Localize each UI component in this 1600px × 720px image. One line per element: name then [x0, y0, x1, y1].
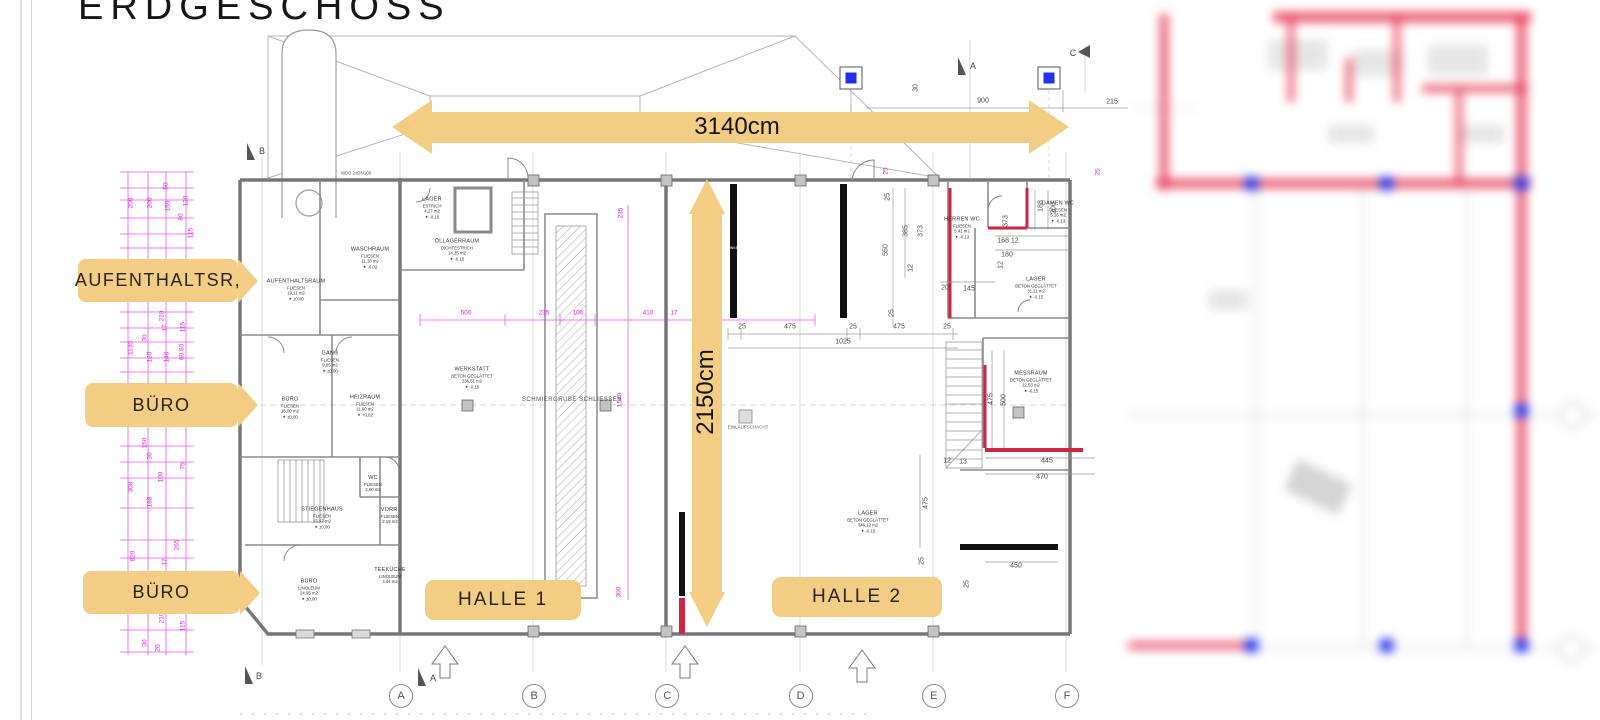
room-name: ÖLLAGERRAUM [435, 239, 479, 246]
room-area: 2,18 m2 [381, 519, 399, 524]
blurred-text-smudge [1328, 125, 1374, 143]
schmiergrube-label: SCHMIERGRUBE SCHLIESSEN [522, 397, 622, 403]
room-level: -0,16 [422, 214, 442, 219]
page-title: ERDGESCHOSS [78, 0, 451, 29]
dim-label: 60,60 [179, 344, 186, 360]
dim-label: 550 [883, 244, 890, 256]
room-name: VORR. [381, 507, 399, 514]
roof-outline [268, 36, 940, 178]
blurred-node-marker [1380, 177, 1393, 190]
dim-label: 450 [1010, 563, 1022, 570]
dim-label: 12 [943, 458, 951, 465]
room-name: HERREN WC [944, 217, 980, 224]
room-label: DAMEN WC FLIESEN 5,16 m2 -0,13 [1042, 201, 1074, 224]
dim-label: 265 [174, 540, 181, 551]
dim-label: 25 [1095, 168, 1102, 175]
section-marker-b-bottom: B [256, 671, 262, 681]
blurred-node-marker [1515, 177, 1528, 190]
dim-label: 150 [142, 438, 149, 449]
room-area: 3,04 m2 [374, 579, 406, 584]
dim-label: 146 [164, 352, 171, 363]
room-name: LAGER [847, 511, 888, 518]
room-name: WERKSTATT [451, 367, 492, 374]
room-area: 4,27 m2 [422, 209, 442, 214]
blurred-grid-bubble [1558, 636, 1584, 662]
door-arcs [268, 158, 1030, 561]
blurred-red-wall [1273, 12, 1531, 22]
width-arrow-left-head [392, 100, 432, 154]
dim-label: 25 [943, 324, 951, 331]
dim-label: 210 [159, 613, 166, 624]
grid-bubble-f: F [1055, 684, 1079, 708]
dim-label: 12 [908, 264, 915, 272]
room-level: -0,15 [847, 528, 888, 533]
halle-2-label: HALLE 2 [772, 577, 942, 617]
blurred-text-smudge [1458, 125, 1504, 143]
room-label: HEIZRAUM FLIESEN 11,60 m2 +0,02 [350, 395, 380, 418]
blurred-node-marker [1515, 404, 1528, 417]
blurred-node-marker [1245, 639, 1258, 652]
section-marker-c: C [1070, 48, 1077, 58]
dim-label: 475 [893, 324, 905, 331]
room-label: LAGER BETON GEGLÄTTET 346,12 m2 -0,15 [847, 511, 888, 534]
blurred-node-marker [1245, 177, 1258, 190]
blurred-plan-region [1128, 0, 1600, 720]
dim-label: 115 [180, 322, 187, 332]
grid-bubble-a: A [389, 684, 413, 708]
width-arrow-right-head [1029, 100, 1069, 154]
tank-outline [282, 30, 336, 218]
blurred-red-wall [1394, 14, 1400, 102]
dim-label: 25 [738, 324, 746, 331]
dim-label: 25 [889, 309, 896, 317]
flag-label: AUFENTHALTSR, [75, 270, 241, 291]
dim-label: 100 [573, 310, 584, 317]
dim-label: 100 [158, 472, 165, 483]
dim-label: 1130 [128, 341, 135, 355]
dim-label: 475 [988, 393, 995, 405]
halle-1-label: HALLE 1 [425, 580, 581, 620]
dim-label: 308 [128, 482, 135, 493]
room-name: LAGER [422, 197, 442, 204]
section-marker-a-bottom: A [430, 673, 436, 683]
dim-label: 30 [142, 334, 149, 341]
dim-label: 500 [1001, 394, 1008, 406]
dim-label: 75 [180, 462, 187, 469]
height-arrow-top-head [689, 179, 725, 214]
room-name: AUFENTHALTSRAUM [267, 279, 326, 286]
grid-bubble-d: D [789, 684, 813, 708]
blurred-node-marker [1380, 639, 1393, 652]
dim-label: 150 [165, 201, 172, 212]
blurred-line [1466, 190, 1468, 648]
dim-label: 20 [155, 644, 162, 651]
dim-label: 17 [162, 558, 169, 565]
flag-aufenthaltsraum: AUFENTHALTSR, [78, 259, 238, 302]
room-name: TEEKÜCHE [374, 567, 406, 574]
grid-bubble-e: E [922, 684, 946, 708]
blurred-red-wall [1456, 92, 1462, 184]
dim-label: 30 [142, 639, 149, 646]
blurred-text-smudge [1428, 45, 1488, 75]
grid-axis-row: A B C D E F [389, 684, 1079, 708]
room-label: WASCHRAUM FLIESEN 11,18 m2 -0,02 [351, 247, 389, 270]
blurred-line [1362, 190, 1364, 648]
dim-label: 17 [162, 324, 169, 331]
room-area: 2,60 m2 [364, 487, 382, 492]
dim-label: 200 [1051, 202, 1058, 214]
room-area: 24,95 m2 [298, 591, 320, 596]
room-level: -0,15 [1015, 294, 1056, 299]
north-arrows [432, 646, 875, 682]
room-label: HERREN WC FLIESEN 5,41 m2 -0,13 [944, 217, 980, 240]
dim-label: 235 [539, 310, 550, 317]
dim-label: 1540 [617, 393, 624, 407]
blurred-text-smudge [1268, 40, 1328, 70]
dim-label: 12 [998, 261, 1005, 269]
dim-label: 200 [147, 198, 154, 209]
dim-label: 13 [959, 459, 967, 466]
room-label: LAGER ESTRICH 4,27 m2 -0,16 [422, 197, 442, 220]
room-level: -0,13 [944, 234, 980, 239]
schmiergrube-pit [545, 214, 597, 598]
dim-label: 300 [616, 587, 623, 598]
dim-label: 188 [1038, 200, 1045, 212]
dim-label: 373 [918, 225, 925, 237]
dim-label: 385 [903, 225, 910, 237]
room-label: BÜRO LINOLEUM 24,95 m2 ±0,00 [298, 579, 320, 602]
flag-label: BÜRO [132, 582, 190, 603]
dim-label: 25 [883, 167, 890, 174]
blurred-node-marker [1515, 639, 1528, 652]
wdb-label: WDB 2xDN100 [341, 171, 372, 176]
blurred-red-wall [1422, 85, 1528, 92]
room-name: WC [364, 475, 382, 482]
grid-bubble-b: B [522, 684, 546, 708]
dim-label: 20 [941, 285, 949, 292]
blurred-line [1255, 190, 1257, 648]
dim-label: 445 [1041, 458, 1053, 465]
width-arrow-label: 3140cm [694, 113, 779, 141]
room-label: AUFENTHALTSRAUM FLIESEN 19,11 m2 ±0,00 [267, 279, 326, 302]
dim-label: 25 [885, 193, 892, 201]
height-arrow-bottom-head [689, 592, 725, 627]
room-name: GANG [321, 351, 339, 358]
dim-label: 200 [128, 198, 135, 209]
dim-label: 145 [963, 286, 975, 293]
section-marker-a: A [970, 61, 976, 71]
dim-label: 115 [180, 621, 187, 631]
hall-label: HALLE 2 [812, 586, 902, 608]
blurred-text-smudge [1208, 290, 1248, 310]
blurred-red-wall [1346, 58, 1352, 102]
dim-label: 373 [1003, 215, 1010, 227]
dim-label: 50 [163, 182, 170, 189]
room-name: WASCHRAUM [351, 247, 389, 254]
floor-plan-view: ERDGESCHOSS [0, 0, 1600, 720]
blurred-red-wall [1128, 642, 1253, 649]
room-name: MESSRAUM [1010, 371, 1051, 378]
room-level: -0,02 [351, 264, 389, 269]
dim-label: 30 [913, 84, 920, 92]
flag-buero-2: BÜRO [83, 571, 240, 614]
room-level: ±0,00 [267, 296, 326, 301]
room-name: HEIZRAUM [350, 395, 380, 402]
blurred-red-wall [1517, 12, 1526, 650]
room-level: ±0,00 [298, 596, 320, 601]
room-label: GANG FLIESEN 9,05 m2 ±0,00 [321, 351, 339, 374]
blurred-red-wall [1156, 179, 1531, 188]
room-level: -0,13 [1042, 218, 1074, 223]
blurred-red-wall [1288, 14, 1294, 102]
room-label: VORR. FLIESEN 2,18 m2 [381, 507, 399, 525]
height-arrow-label: 2150cm [692, 349, 720, 434]
dim-label: 120 [183, 196, 190, 207]
dim-label: 1025 [835, 339, 851, 346]
blurred-grid-bubble [1560, 402, 1586, 428]
room-level: -0,15 [451, 384, 492, 389]
dim-label: 180 [1001, 252, 1013, 259]
room-area: 16,00 m2 [281, 409, 299, 414]
blurred-red-wall [1160, 14, 1168, 190]
dim-label: 17 [670, 310, 677, 317]
room-name: BÜRO [298, 579, 320, 586]
room-level: ±0,00 [321, 368, 339, 373]
dim-label: 168 12 [997, 238, 1018, 245]
dim-label: 215 [1106, 99, 1118, 106]
room-level: -0,15 [1010, 388, 1051, 393]
dim-label: 80 [178, 213, 185, 220]
dim-label: 115 [188, 228, 195, 238]
room-label: LAGER BETON GEGLÄTTET 31,11 m2 -0,15 [1015, 277, 1056, 300]
room-label: TEEKÜCHE LINOLEUM 3,04 m2 [374, 567, 406, 585]
grid-bubble-c: C [655, 684, 679, 708]
room-level: +0,02 [350, 412, 380, 417]
dim-label: 168 [147, 497, 154, 508]
dim-label: 25 [849, 324, 857, 331]
dim-label: 475 [784, 324, 796, 331]
dim-label: 30 [147, 452, 154, 459]
room-name: STIEGENHAUS [301, 507, 343, 514]
blurred-mark [1284, 459, 1353, 515]
dim-label: 475 [923, 497, 930, 509]
klinker-label: KLINKER [726, 246, 741, 250]
room-level: ±0,00 [301, 524, 343, 529]
dim-label: 210 [159, 311, 166, 322]
room-name: BÜRO [281, 397, 299, 404]
room-label: STIEGENHAUS FLIESEN 13,97 m2 ±0,00 [301, 507, 343, 530]
einlaufschacht-label: EINLAUFSCHACHT [728, 425, 769, 430]
dim-label: 500 [461, 310, 472, 317]
dim-label: 120 [147, 352, 154, 363]
grid-node-markers [846, 73, 1055, 84]
room-name: LAGER [1015, 277, 1056, 284]
dim-label: 820 [130, 551, 137, 562]
room-name: DAMEN WC [1042, 201, 1074, 208]
dim-label: 25 [919, 557, 926, 565]
room-area: 9,05 m2 [321, 363, 339, 368]
room-label: WERKSTATT BETON GEGLÄTTET 236,51 m2 -0,1… [451, 367, 492, 390]
flag-buero-1: BÜRO [85, 383, 238, 427]
section-marker-b: B [259, 146, 265, 156]
dim-label: 235 [618, 208, 625, 219]
hall-label: HALLE 1 [458, 589, 548, 611]
room-label: BÜRO FLIESEN 16,00 m2 ±0,00 [281, 397, 299, 420]
room-label: WC FLIESEN 2,60 m2 [364, 475, 382, 493]
stairs [278, 192, 982, 522]
dim-label: 410 [643, 310, 654, 317]
room-level: ±0,00 [281, 414, 299, 419]
dim-label: 900 [977, 98, 989, 105]
room-label: ÖLLAGERRAUM DICHTESTRICH 14,35 m2 -0,15 [435, 239, 479, 262]
flag-label: BÜRO [132, 395, 190, 416]
dim-label: 470 [1036, 474, 1048, 481]
room-level: -0,15 [435, 256, 479, 261]
dim-label: 25 [964, 580, 971, 588]
room-label: MESSRAUM BETON GEGLÄTTET 22,53 m2 -0,15 [1010, 371, 1051, 394]
